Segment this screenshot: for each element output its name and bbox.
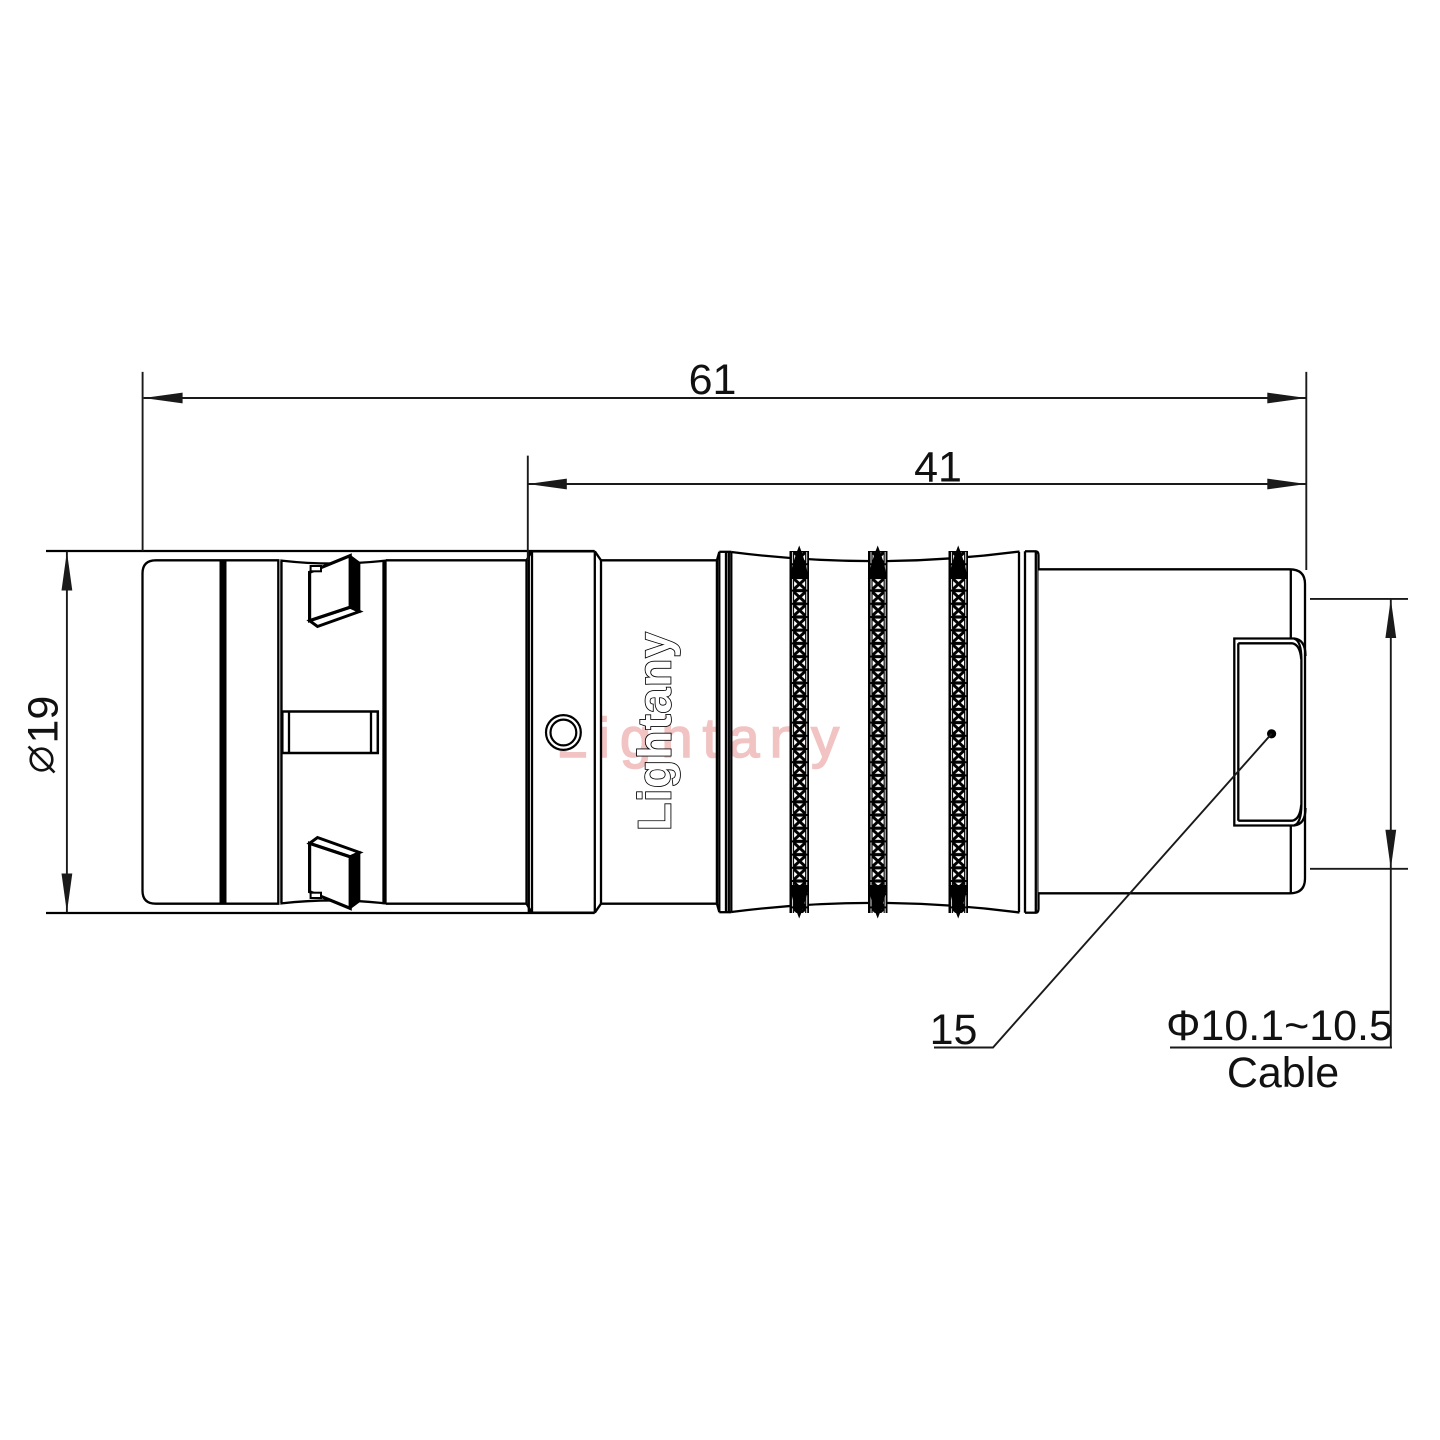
svg-text:61: 61 (689, 356, 737, 404)
svg-text:Cable: Cable (1227, 1049, 1339, 1097)
svg-text:Φ10.1~10.5: Φ10.1~10.5 (1166, 1002, 1393, 1050)
svg-text:19: 19 (20, 696, 68, 744)
svg-text:15: 15 (930, 1006, 978, 1054)
svg-text:Lightany: Lightany (629, 631, 681, 831)
svg-text:41: 41 (914, 443, 962, 491)
